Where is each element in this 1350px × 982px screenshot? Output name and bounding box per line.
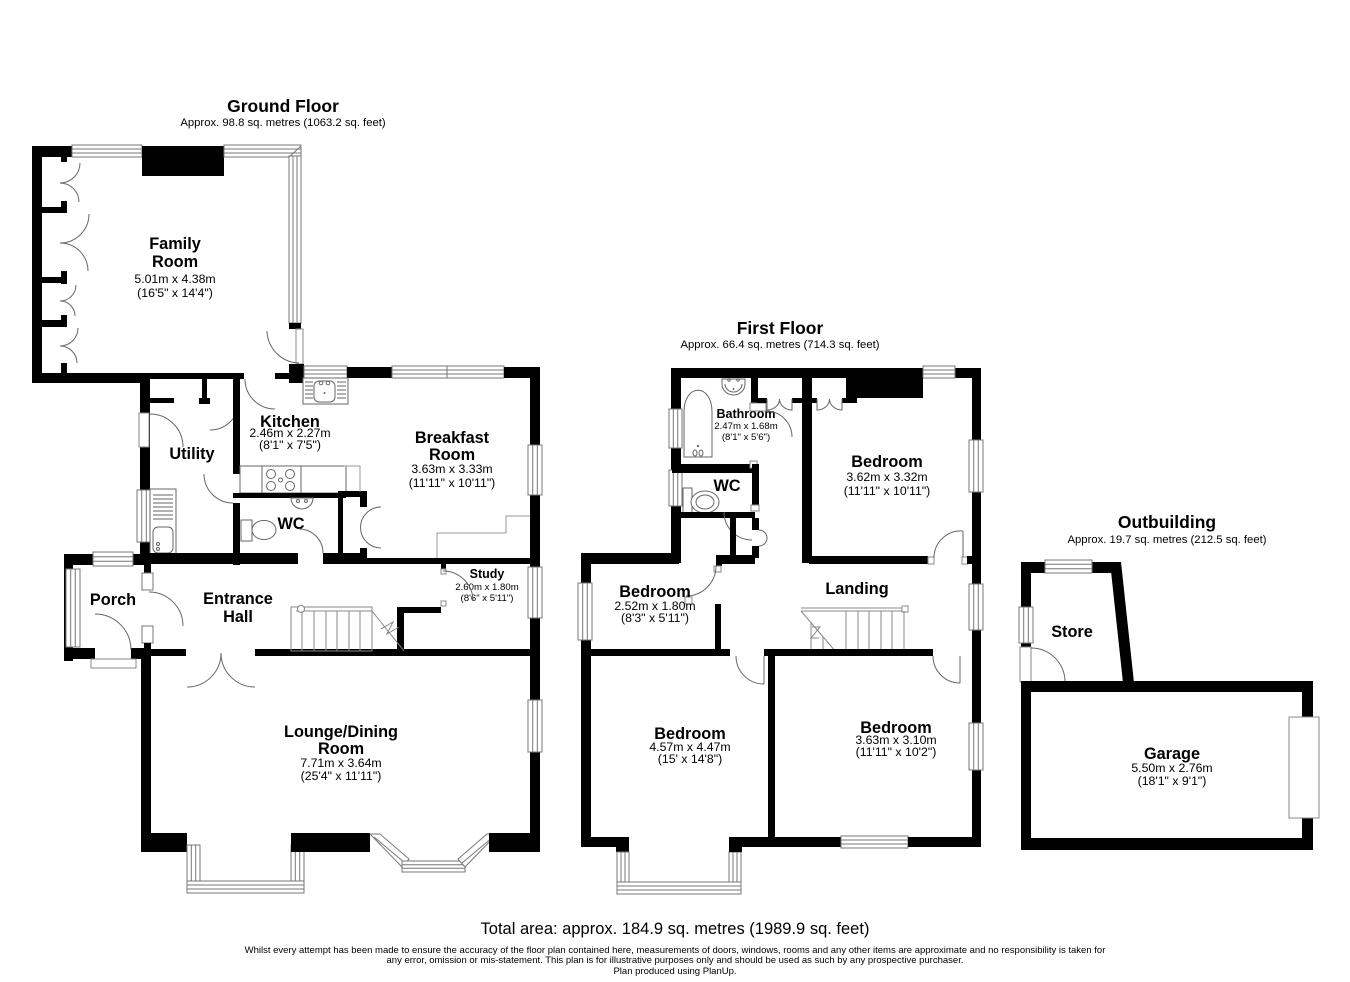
svg-text:Approx. 66.4 sq. metres (714.3: Approx. 66.4 sq. metres (714.3 sq. feet)	[680, 339, 879, 351]
svg-text:Approx. 19.7 sq. metres (212.5: Approx. 19.7 sq. metres (212.5 sq. feet)	[1067, 534, 1266, 546]
svg-text:any error, omission or mis-sta: any error, omission or mis-statement. Th…	[387, 955, 964, 966]
svg-text:5.50m x 2.76m: 5.50m x 2.76m	[1131, 761, 1212, 775]
svg-text:Room: Room	[152, 253, 198, 271]
svg-text:(11'11" x 10'11"): (11'11" x 10'11")	[409, 476, 496, 490]
svg-text:WC: WC	[713, 477, 740, 495]
svg-text:3.63m x 3.33m: 3.63m x 3.33m	[411, 462, 492, 476]
svg-text:2.60m x 1.80m: 2.60m x 1.80m	[455, 582, 518, 593]
svg-text:WC: WC	[277, 515, 304, 533]
svg-text:Hall: Hall	[223, 608, 253, 626]
svg-text:Outbuilding: Outbuilding	[1118, 512, 1216, 532]
svg-text:(11'11" x 10'2"): (11'11" x 10'2")	[856, 745, 937, 759]
svg-text:(25'4" x 11'11"): (25'4" x 11'11")	[301, 769, 382, 783]
svg-text:Study: Study	[470, 567, 505, 581]
svg-text:Family: Family	[149, 235, 201, 253]
svg-text:(8'6" x 5'11"): (8'6" x 5'11")	[461, 593, 514, 604]
svg-text:Plan produced using PlanUp.: Plan produced using PlanUp.	[613, 966, 736, 977]
svg-text:5.01m x 4.38m: 5.01m x 4.38m	[134, 272, 215, 286]
svg-text:(8'1" x 5'6"): (8'1" x 5'6")	[722, 432, 770, 443]
svg-text:Utility: Utility	[169, 445, 214, 463]
svg-text:Porch: Porch	[90, 591, 136, 609]
svg-text:Approx. 98.8 sq. metres (1063.: Approx. 98.8 sq. metres (1063.2 sq. feet…	[180, 117, 386, 129]
svg-text:(8'1" x 7'5"): (8'1" x 7'5")	[259, 438, 321, 452]
svg-text:Store: Store	[1051, 623, 1093, 641]
svg-text:Bedroom: Bedroom	[851, 453, 922, 471]
svg-text:(11'11" x 10'11"): (11'11" x 10'11")	[844, 484, 931, 498]
svg-text:Breakfast: Breakfast	[415, 429, 490, 447]
svg-text:Entrance: Entrance	[203, 590, 273, 608]
svg-text:Ground Floor: Ground Floor	[227, 96, 339, 116]
svg-text:(8'3" x 5'11"): (8'3" x 5'11")	[621, 611, 689, 625]
svg-text:3.62m x 3.32m: 3.62m x 3.32m	[846, 470, 927, 484]
svg-text:(18'1" x 9'1"): (18'1" x 9'1")	[1138, 774, 1207, 788]
svg-text:Total area: approx. 184.9 sq.: Total area: approx. 184.9 sq. metres (19…	[481, 920, 870, 938]
svg-text:2.47m x 1.68m: 2.47m x 1.68m	[714, 421, 777, 432]
svg-text:Landing: Landing	[825, 580, 888, 598]
svg-text:First Floor: First Floor	[737, 318, 824, 338]
svg-text:Lounge/Dining: Lounge/Dining	[284, 723, 398, 741]
svg-text:(15' x 14'8"): (15' x 14'8")	[658, 752, 722, 766]
svg-text:(16'5" x 14'4"): (16'5" x 14'4")	[137, 286, 213, 300]
svg-text:7.71m x 3.64m: 7.71m x 3.64m	[300, 756, 381, 770]
